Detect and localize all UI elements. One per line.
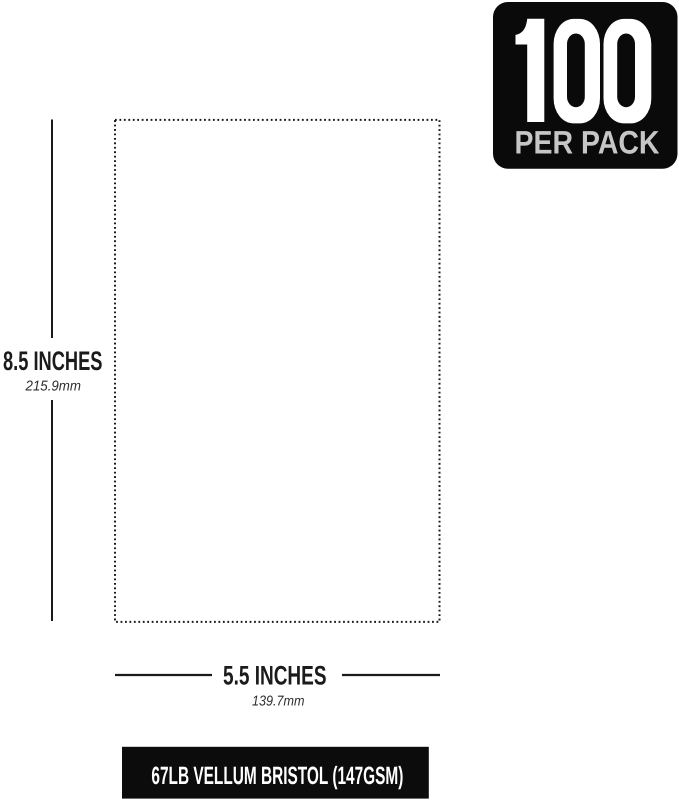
svg-text:PER PACK: PER PACK — [515, 123, 660, 160]
svg-text:8.5 INCHES: 8.5 INCHES — [3, 346, 103, 376]
svg-text:5.5 INCHES: 5.5 INCHES — [223, 660, 327, 690]
svg-text:215.9mm: 215.9mm — [25, 379, 82, 395]
svg-text:67LB VELLUM BRISTOL (147GSM): 67LB VELLUM BRISTOL (147GSM) — [151, 762, 403, 790]
svg-text:139.7mm: 139.7mm — [252, 694, 305, 710]
